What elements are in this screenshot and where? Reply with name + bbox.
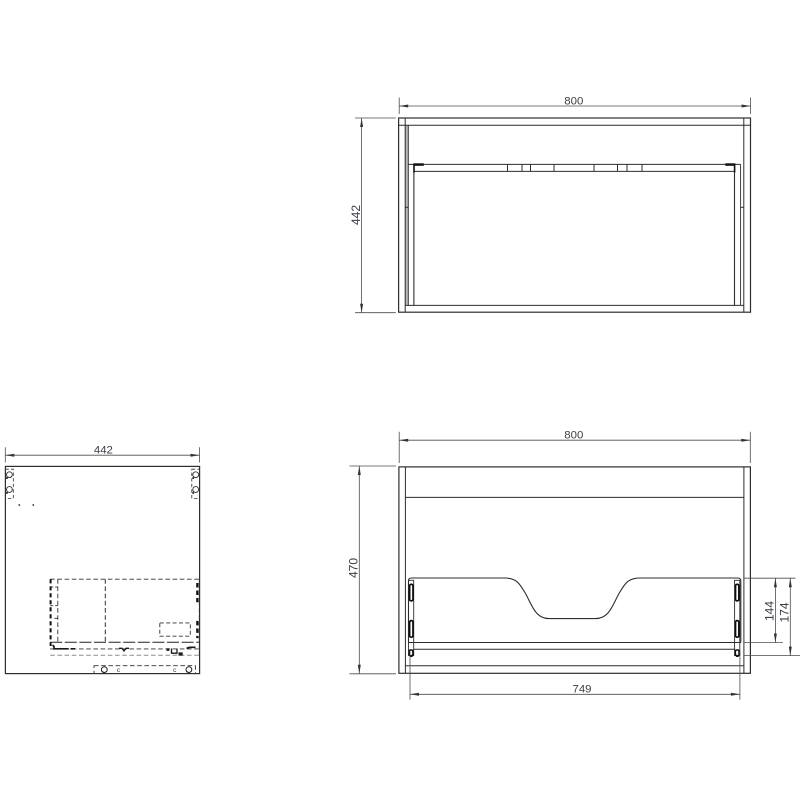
svg-text:800: 800	[564, 95, 583, 107]
svg-text:442: 442	[94, 445, 113, 457]
svg-text:442: 442	[349, 205, 363, 225]
svg-text:c: c	[117, 667, 121, 674]
svg-text:800: 800	[564, 430, 583, 442]
svg-text:174: 174	[778, 602, 792, 622]
svg-text:c: c	[173, 667, 177, 674]
svg-text:144: 144	[763, 601, 777, 621]
svg-text:470: 470	[347, 558, 361, 578]
svg-text:749: 749	[572, 684, 591, 696]
